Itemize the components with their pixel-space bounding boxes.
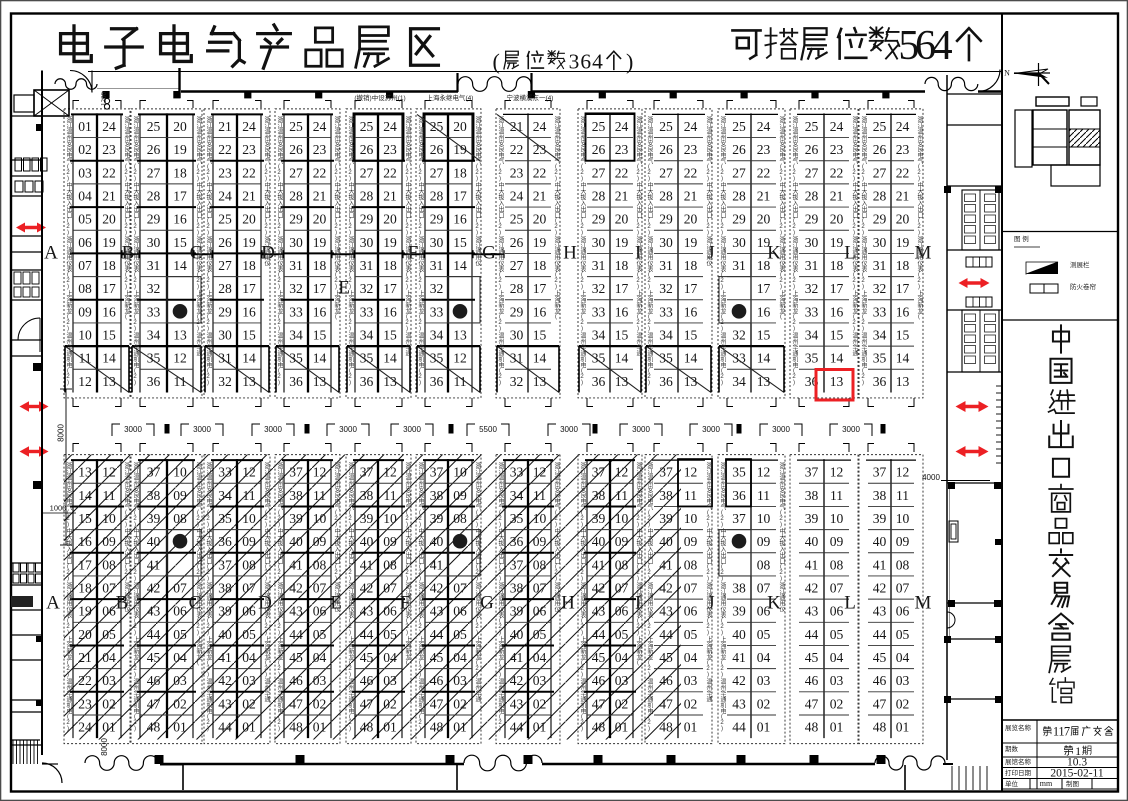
- svg-text:3000: 3000: [403, 425, 421, 434]
- svg-text:21: 21: [218, 119, 232, 134]
- svg-text:35: 35: [510, 511, 524, 526]
- svg-text:05: 05: [78, 212, 92, 227]
- svg-text:09: 09: [453, 488, 467, 503]
- svg-text:21: 21: [383, 188, 397, 203]
- svg-text:17: 17: [78, 557, 92, 572]
- svg-text:10: 10: [78, 328, 92, 343]
- svg-text:11: 11: [533, 488, 546, 503]
- svg-text:02: 02: [830, 696, 844, 711]
- svg-text:34: 34: [873, 328, 887, 343]
- svg-text:G: G: [480, 593, 494, 614]
- svg-text:21: 21: [757, 188, 771, 203]
- svg-text:41: 41: [732, 650, 746, 665]
- svg-text:46: 46: [592, 673, 606, 688]
- svg-text:36: 36: [360, 374, 374, 389]
- svg-text:09: 09: [102, 534, 116, 549]
- svg-text:31: 31: [430, 258, 444, 273]
- svg-text:44: 44: [430, 627, 444, 642]
- svg-text:20: 20: [757, 212, 771, 227]
- svg-text:33: 33: [510, 465, 524, 480]
- svg-text:18: 18: [173, 165, 187, 180]
- svg-text:28: 28: [592, 188, 606, 203]
- svg-text:15: 15: [453, 235, 467, 250]
- svg-text:31: 31: [873, 258, 887, 273]
- svg-text:47: 47: [805, 696, 819, 711]
- svg-text:20: 20: [313, 212, 327, 227]
- svg-text:22: 22: [684, 165, 698, 180]
- svg-text:36: 36: [732, 488, 746, 503]
- svg-text:45: 45: [430, 650, 444, 665]
- svg-text:38: 38: [659, 488, 673, 503]
- svg-text:35: 35: [218, 511, 232, 526]
- svg-text:4000: 4000: [922, 473, 940, 482]
- svg-text:48: 48: [592, 720, 606, 735]
- svg-text:39: 39: [218, 604, 232, 619]
- svg-text:36: 36: [430, 374, 444, 389]
- svg-text:34: 34: [805, 328, 819, 343]
- svg-text:20: 20: [830, 212, 844, 227]
- svg-text:01: 01: [453, 720, 467, 735]
- svg-text:35: 35: [732, 465, 746, 480]
- svg-text:10: 10: [757, 511, 771, 526]
- svg-text:29: 29: [592, 212, 606, 227]
- svg-text:29: 29: [659, 212, 673, 227]
- svg-text:08: 08: [757, 557, 771, 572]
- svg-text:03: 03: [173, 673, 187, 688]
- svg-text:35: 35: [592, 351, 606, 366]
- svg-text:09: 09: [78, 304, 92, 319]
- svg-text:36: 36: [147, 374, 161, 389]
- svg-text:42: 42: [592, 581, 606, 596]
- svg-text:41: 41: [218, 650, 232, 665]
- svg-text:26: 26: [147, 142, 161, 157]
- svg-text:29: 29: [805, 212, 819, 227]
- svg-text:01: 01: [757, 720, 771, 735]
- svg-text:24: 24: [218, 188, 232, 203]
- svg-text:44: 44: [147, 627, 161, 642]
- svg-text:1200: 1200: [100, 92, 108, 107]
- svg-text:20: 20: [173, 119, 187, 134]
- svg-text:05: 05: [313, 627, 327, 642]
- svg-text:18: 18: [453, 165, 467, 180]
- svg-text:42: 42: [360, 581, 374, 596]
- svg-text:34: 34: [732, 374, 746, 389]
- svg-text:29: 29: [430, 212, 444, 227]
- svg-text:28: 28: [510, 281, 524, 296]
- svg-text:37: 37: [805, 465, 819, 480]
- svg-text:22: 22: [383, 165, 397, 180]
- svg-text:08: 08: [383, 557, 397, 572]
- svg-text:32: 32: [873, 281, 887, 296]
- svg-text:40: 40: [805, 534, 819, 549]
- svg-text:24: 24: [830, 119, 844, 134]
- svg-text:11: 11: [102, 488, 115, 503]
- svg-text:42: 42: [659, 581, 673, 596]
- svg-text:46: 46: [805, 673, 819, 688]
- svg-text:08: 08: [242, 557, 256, 572]
- svg-text:10: 10: [173, 465, 187, 480]
- svg-text:38: 38: [592, 488, 606, 503]
- svg-text:14: 14: [313, 351, 327, 366]
- svg-text:12: 12: [533, 465, 547, 480]
- svg-text:39: 39: [805, 511, 819, 526]
- svg-text:16: 16: [830, 304, 844, 319]
- svg-text:42: 42: [147, 581, 161, 596]
- svg-text:42: 42: [218, 673, 232, 688]
- svg-text:H: H: [563, 243, 577, 264]
- svg-text:16: 16: [383, 304, 397, 319]
- svg-text:33: 33: [805, 304, 819, 319]
- svg-text:07: 07: [615, 581, 629, 596]
- svg-text:H: H: [561, 593, 575, 614]
- svg-text:10: 10: [615, 511, 629, 526]
- svg-text:23: 23: [218, 165, 232, 180]
- svg-text:37: 37: [289, 465, 303, 480]
- svg-text:20: 20: [453, 119, 467, 134]
- svg-text:36: 36: [873, 374, 887, 389]
- svg-text:01: 01: [102, 720, 116, 735]
- svg-text:18: 18: [242, 258, 256, 273]
- svg-text:3: 3: [569, 49, 580, 73]
- svg-text:40: 40: [732, 627, 746, 642]
- svg-text:36: 36: [592, 374, 606, 389]
- svg-text:05: 05: [830, 627, 844, 642]
- svg-text:06: 06: [173, 604, 187, 619]
- svg-text:04: 04: [684, 650, 698, 665]
- svg-text:41: 41: [360, 557, 374, 572]
- svg-text:10: 10: [533, 511, 547, 526]
- svg-text:02: 02: [173, 696, 187, 711]
- svg-text:16: 16: [102, 304, 116, 319]
- svg-text:22: 22: [218, 142, 232, 157]
- svg-text:19: 19: [533, 235, 547, 250]
- svg-text:05: 05: [615, 627, 629, 642]
- svg-text:35: 35: [873, 351, 887, 366]
- svg-text:30: 30: [592, 235, 606, 250]
- svg-text:37: 37: [592, 465, 606, 480]
- svg-text:19: 19: [615, 235, 629, 250]
- svg-text:32: 32: [592, 281, 606, 296]
- svg-text:41: 41: [147, 557, 161, 572]
- svg-text:05: 05: [453, 627, 467, 642]
- svg-text:38: 38: [510, 581, 524, 596]
- svg-text:22: 22: [757, 165, 771, 180]
- svg-text:07: 07: [896, 581, 910, 596]
- svg-text:14: 14: [830, 351, 844, 366]
- svg-text:09: 09: [615, 534, 629, 549]
- svg-text:15: 15: [173, 235, 187, 250]
- svg-text:29: 29: [873, 212, 887, 227]
- svg-text:30: 30: [218, 328, 232, 343]
- svg-text:25: 25: [360, 119, 374, 134]
- svg-text:25: 25: [510, 212, 524, 227]
- svg-text:43: 43: [430, 604, 444, 619]
- svg-text:23: 23: [830, 142, 844, 157]
- svg-text:21: 21: [102, 188, 116, 203]
- svg-text:25: 25: [805, 119, 819, 134]
- svg-text:34: 34: [147, 328, 161, 343]
- svg-text:11: 11: [830, 488, 843, 503]
- svg-text:42: 42: [873, 581, 887, 596]
- svg-text:19: 19: [102, 235, 116, 250]
- svg-text:25: 25: [592, 119, 606, 134]
- svg-text:23: 23: [383, 142, 397, 157]
- svg-text:03: 03: [615, 673, 629, 688]
- svg-text:38: 38: [873, 488, 887, 503]
- svg-text:18: 18: [313, 258, 327, 273]
- svg-text:39: 39: [732, 604, 746, 619]
- svg-text:43: 43: [147, 604, 161, 619]
- svg-text:26: 26: [360, 142, 374, 157]
- svg-text:12: 12: [615, 465, 629, 480]
- svg-text:37: 37: [218, 557, 232, 572]
- svg-text:03: 03: [684, 673, 698, 688]
- svg-text:04: 04: [383, 650, 397, 665]
- svg-text:46: 46: [873, 673, 887, 688]
- svg-text:04: 04: [533, 650, 547, 665]
- svg-text:14: 14: [102, 351, 116, 366]
- svg-text:01: 01: [173, 720, 187, 735]
- svg-text:3000: 3000: [339, 425, 357, 434]
- svg-text:40: 40: [510, 627, 524, 642]
- svg-text:20: 20: [684, 212, 698, 227]
- svg-text:23: 23: [78, 696, 92, 711]
- svg-text:48: 48: [430, 720, 444, 735]
- svg-text:01: 01: [830, 720, 844, 735]
- svg-text:27: 27: [732, 165, 746, 180]
- svg-text:15: 15: [615, 328, 629, 343]
- svg-text:02: 02: [313, 696, 327, 711]
- svg-text:12: 12: [684, 465, 698, 480]
- svg-text:39: 39: [592, 511, 606, 526]
- svg-text:19: 19: [896, 235, 910, 250]
- svg-text:01: 01: [684, 720, 698, 735]
- svg-text:35: 35: [805, 351, 819, 366]
- svg-text:08: 08: [896, 557, 910, 572]
- svg-text:09: 09: [383, 534, 397, 549]
- svg-text:03: 03: [78, 165, 92, 180]
- svg-text:02: 02: [684, 696, 698, 711]
- svg-text:3000: 3000: [842, 425, 860, 434]
- svg-text:10: 10: [313, 511, 327, 526]
- svg-text:44: 44: [592, 627, 606, 642]
- svg-text:21: 21: [830, 188, 844, 203]
- svg-text:48: 48: [289, 720, 303, 735]
- svg-text:25: 25: [659, 119, 673, 134]
- svg-text:02: 02: [757, 696, 771, 711]
- svg-text:24: 24: [102, 119, 116, 134]
- svg-text:46: 46: [360, 673, 374, 688]
- svg-text:48: 48: [805, 720, 819, 735]
- svg-text:09: 09: [757, 534, 771, 549]
- svg-text:11: 11: [313, 488, 326, 503]
- svg-text:07: 07: [173, 581, 187, 596]
- svg-text:44: 44: [360, 627, 374, 642]
- svg-text:06: 06: [615, 604, 629, 619]
- svg-text:20: 20: [896, 212, 910, 227]
- svg-text:12: 12: [242, 465, 256, 480]
- svg-text:23: 23: [684, 142, 698, 157]
- svg-text:44: 44: [732, 720, 746, 735]
- svg-text:02: 02: [383, 696, 397, 711]
- svg-text:20: 20: [78, 627, 92, 642]
- svg-text:14: 14: [242, 351, 256, 366]
- svg-text:30: 30: [659, 235, 673, 250]
- svg-text:24: 24: [615, 119, 629, 134]
- svg-text:48: 48: [147, 720, 161, 735]
- svg-text:43: 43: [510, 696, 524, 711]
- svg-text:41: 41: [510, 650, 524, 665]
- svg-text:28: 28: [289, 188, 303, 203]
- svg-text:A: A: [44, 243, 58, 264]
- svg-text:40: 40: [147, 534, 161, 549]
- svg-text:29: 29: [147, 212, 161, 227]
- svg-text:N: N: [1004, 69, 1010, 78]
- svg-text:33: 33: [659, 304, 673, 319]
- svg-text:12: 12: [383, 465, 397, 480]
- svg-text:01: 01: [78, 119, 92, 134]
- svg-text:34: 34: [289, 328, 303, 343]
- svg-text:13: 13: [896, 374, 910, 389]
- svg-text:36: 36: [510, 534, 524, 549]
- svg-text:16: 16: [615, 304, 629, 319]
- svg-text:17: 17: [383, 281, 397, 296]
- svg-text:02: 02: [453, 696, 467, 711]
- svg-text:11: 11: [383, 488, 396, 503]
- svg-text:27: 27: [360, 165, 374, 180]
- svg-text:27: 27: [218, 258, 232, 273]
- svg-text:17: 17: [896, 281, 910, 296]
- svg-text:22: 22: [896, 165, 910, 180]
- svg-text:37: 37: [510, 557, 524, 572]
- svg-text:45: 45: [805, 650, 819, 665]
- svg-text:31: 31: [289, 258, 303, 273]
- svg-text:26: 26: [218, 235, 232, 250]
- svg-text:36: 36: [659, 374, 673, 389]
- svg-text:27: 27: [805, 165, 819, 180]
- svg-text:46: 46: [430, 673, 444, 688]
- svg-text:15: 15: [830, 328, 844, 343]
- svg-text:45: 45: [592, 650, 606, 665]
- svg-text:32: 32: [289, 281, 303, 296]
- svg-text:24: 24: [510, 188, 524, 203]
- svg-text:22: 22: [615, 165, 629, 180]
- svg-text:37: 37: [659, 465, 673, 480]
- svg-text:05: 05: [242, 627, 256, 642]
- svg-text:04: 04: [830, 650, 844, 665]
- svg-text:21: 21: [533, 188, 547, 203]
- svg-text:3000: 3000: [264, 425, 282, 434]
- svg-text:14: 14: [757, 351, 771, 366]
- svg-text:09: 09: [896, 534, 910, 549]
- svg-text:47: 47: [430, 696, 444, 711]
- svg-text:43: 43: [659, 604, 673, 619]
- svg-text:40: 40: [592, 534, 606, 549]
- svg-text:26: 26: [732, 142, 746, 157]
- svg-text:11: 11: [684, 488, 697, 503]
- svg-text:04: 04: [173, 650, 187, 665]
- svg-text:25: 25: [218, 212, 232, 227]
- svg-text:44: 44: [510, 720, 524, 735]
- svg-text:46: 46: [147, 673, 161, 688]
- svg-text:47: 47: [147, 696, 161, 711]
- svg-text:21: 21: [510, 119, 524, 134]
- svg-text:22: 22: [510, 142, 524, 157]
- svg-text:21: 21: [615, 188, 629, 203]
- svg-text:31: 31: [360, 258, 374, 273]
- svg-text:07: 07: [383, 581, 397, 596]
- svg-text:42: 42: [805, 581, 819, 596]
- svg-text:15: 15: [757, 328, 771, 343]
- svg-text:47: 47: [592, 696, 606, 711]
- svg-text:31: 31: [659, 258, 673, 273]
- svg-text:03: 03: [313, 673, 327, 688]
- svg-text:07: 07: [533, 581, 547, 596]
- svg-text:21: 21: [242, 188, 256, 203]
- svg-text:22: 22: [102, 165, 116, 180]
- svg-text:05: 05: [896, 627, 910, 642]
- svg-text:16: 16: [684, 304, 698, 319]
- svg-text:15: 15: [383, 328, 397, 343]
- svg-text:16: 16: [757, 304, 771, 319]
- svg-text:34: 34: [360, 328, 374, 343]
- svg-text:48: 48: [360, 720, 374, 735]
- svg-text:35: 35: [289, 351, 303, 366]
- svg-text:29: 29: [218, 304, 232, 319]
- svg-text:08: 08: [615, 557, 629, 572]
- svg-text:26: 26: [592, 142, 606, 157]
- svg-text:16: 16: [173, 212, 187, 227]
- svg-text:29: 29: [289, 212, 303, 227]
- svg-text:14: 14: [78, 488, 92, 503]
- svg-text:31: 31: [510, 351, 524, 366]
- svg-text:02: 02: [615, 696, 629, 711]
- svg-text:16: 16: [896, 304, 910, 319]
- svg-text:32: 32: [510, 374, 524, 389]
- svg-text:32: 32: [732, 328, 746, 343]
- svg-text:15: 15: [242, 328, 256, 343]
- svg-text:32: 32: [360, 281, 374, 296]
- svg-text:02: 02: [78, 142, 92, 157]
- svg-text:13: 13: [453, 328, 467, 343]
- svg-text:39: 39: [659, 511, 673, 526]
- svg-text:20: 20: [383, 212, 397, 227]
- svg-text:42: 42: [289, 581, 303, 596]
- svg-text:34: 34: [218, 488, 232, 503]
- svg-text:43: 43: [592, 604, 606, 619]
- svg-text:48: 48: [873, 720, 887, 735]
- svg-text:05: 05: [684, 627, 698, 642]
- svg-text:09: 09: [313, 534, 327, 549]
- svg-text:17: 17: [242, 281, 256, 296]
- svg-text:06: 06: [684, 604, 698, 619]
- svg-text:44: 44: [218, 720, 232, 735]
- svg-text:22: 22: [533, 165, 547, 180]
- svg-text:03: 03: [102, 673, 116, 688]
- svg-text:45: 45: [289, 650, 303, 665]
- svg-text:16: 16: [78, 534, 92, 549]
- svg-text:03: 03: [896, 673, 910, 688]
- svg-text:01: 01: [533, 720, 547, 735]
- svg-text:02: 02: [242, 696, 256, 711]
- svg-text:24: 24: [533, 119, 547, 134]
- svg-text:27: 27: [510, 258, 524, 273]
- svg-text:06: 06: [78, 235, 92, 250]
- svg-text:14: 14: [684, 351, 698, 366]
- svg-text:6: 6: [580, 49, 591, 73]
- svg-text:12: 12: [78, 374, 92, 389]
- svg-text:16: 16: [533, 304, 547, 319]
